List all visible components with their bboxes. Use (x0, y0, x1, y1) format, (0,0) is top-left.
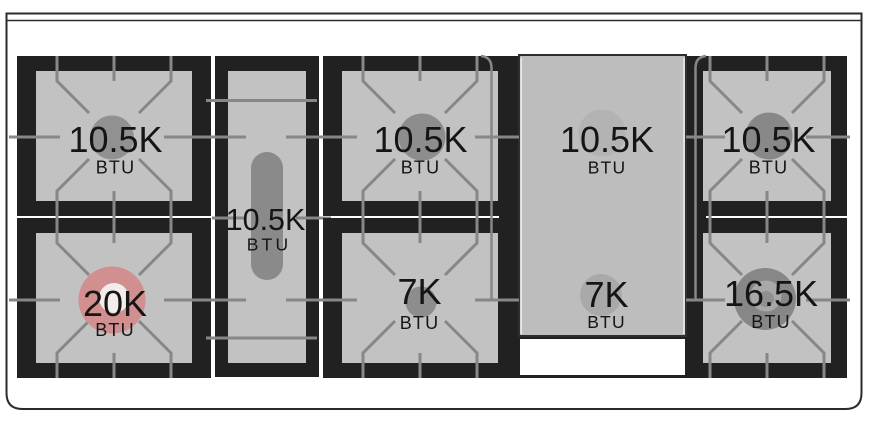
svg-text:BTU: BTU (247, 235, 292, 255)
svg-text:10.5K: 10.5K (68, 119, 162, 160)
svg-text:16.5K: 16.5K (724, 273, 818, 314)
svg-text:10.5K: 10.5K (226, 203, 306, 237)
svg-text:BTU: BTU (587, 312, 626, 332)
svg-text:BTU: BTU (400, 313, 440, 333)
svg-text:10.5K: 10.5K (373, 119, 467, 160)
svg-text:BTU: BTU (401, 158, 441, 178)
svg-text:10.5K: 10.5K (721, 119, 815, 160)
svg-text:BTU: BTU (588, 158, 627, 178)
svg-text:BTU: BTU (95, 320, 135, 340)
svg-text:BTU: BTU (751, 312, 791, 332)
svg-text:BTU: BTU (749, 158, 789, 178)
svg-text:7K: 7K (397, 271, 441, 312)
svg-text:BTU: BTU (96, 158, 136, 178)
svg-text:20K: 20K (83, 283, 147, 324)
svg-text:10.5K: 10.5K (560, 119, 654, 160)
svg-text:7K: 7K (584, 274, 628, 315)
